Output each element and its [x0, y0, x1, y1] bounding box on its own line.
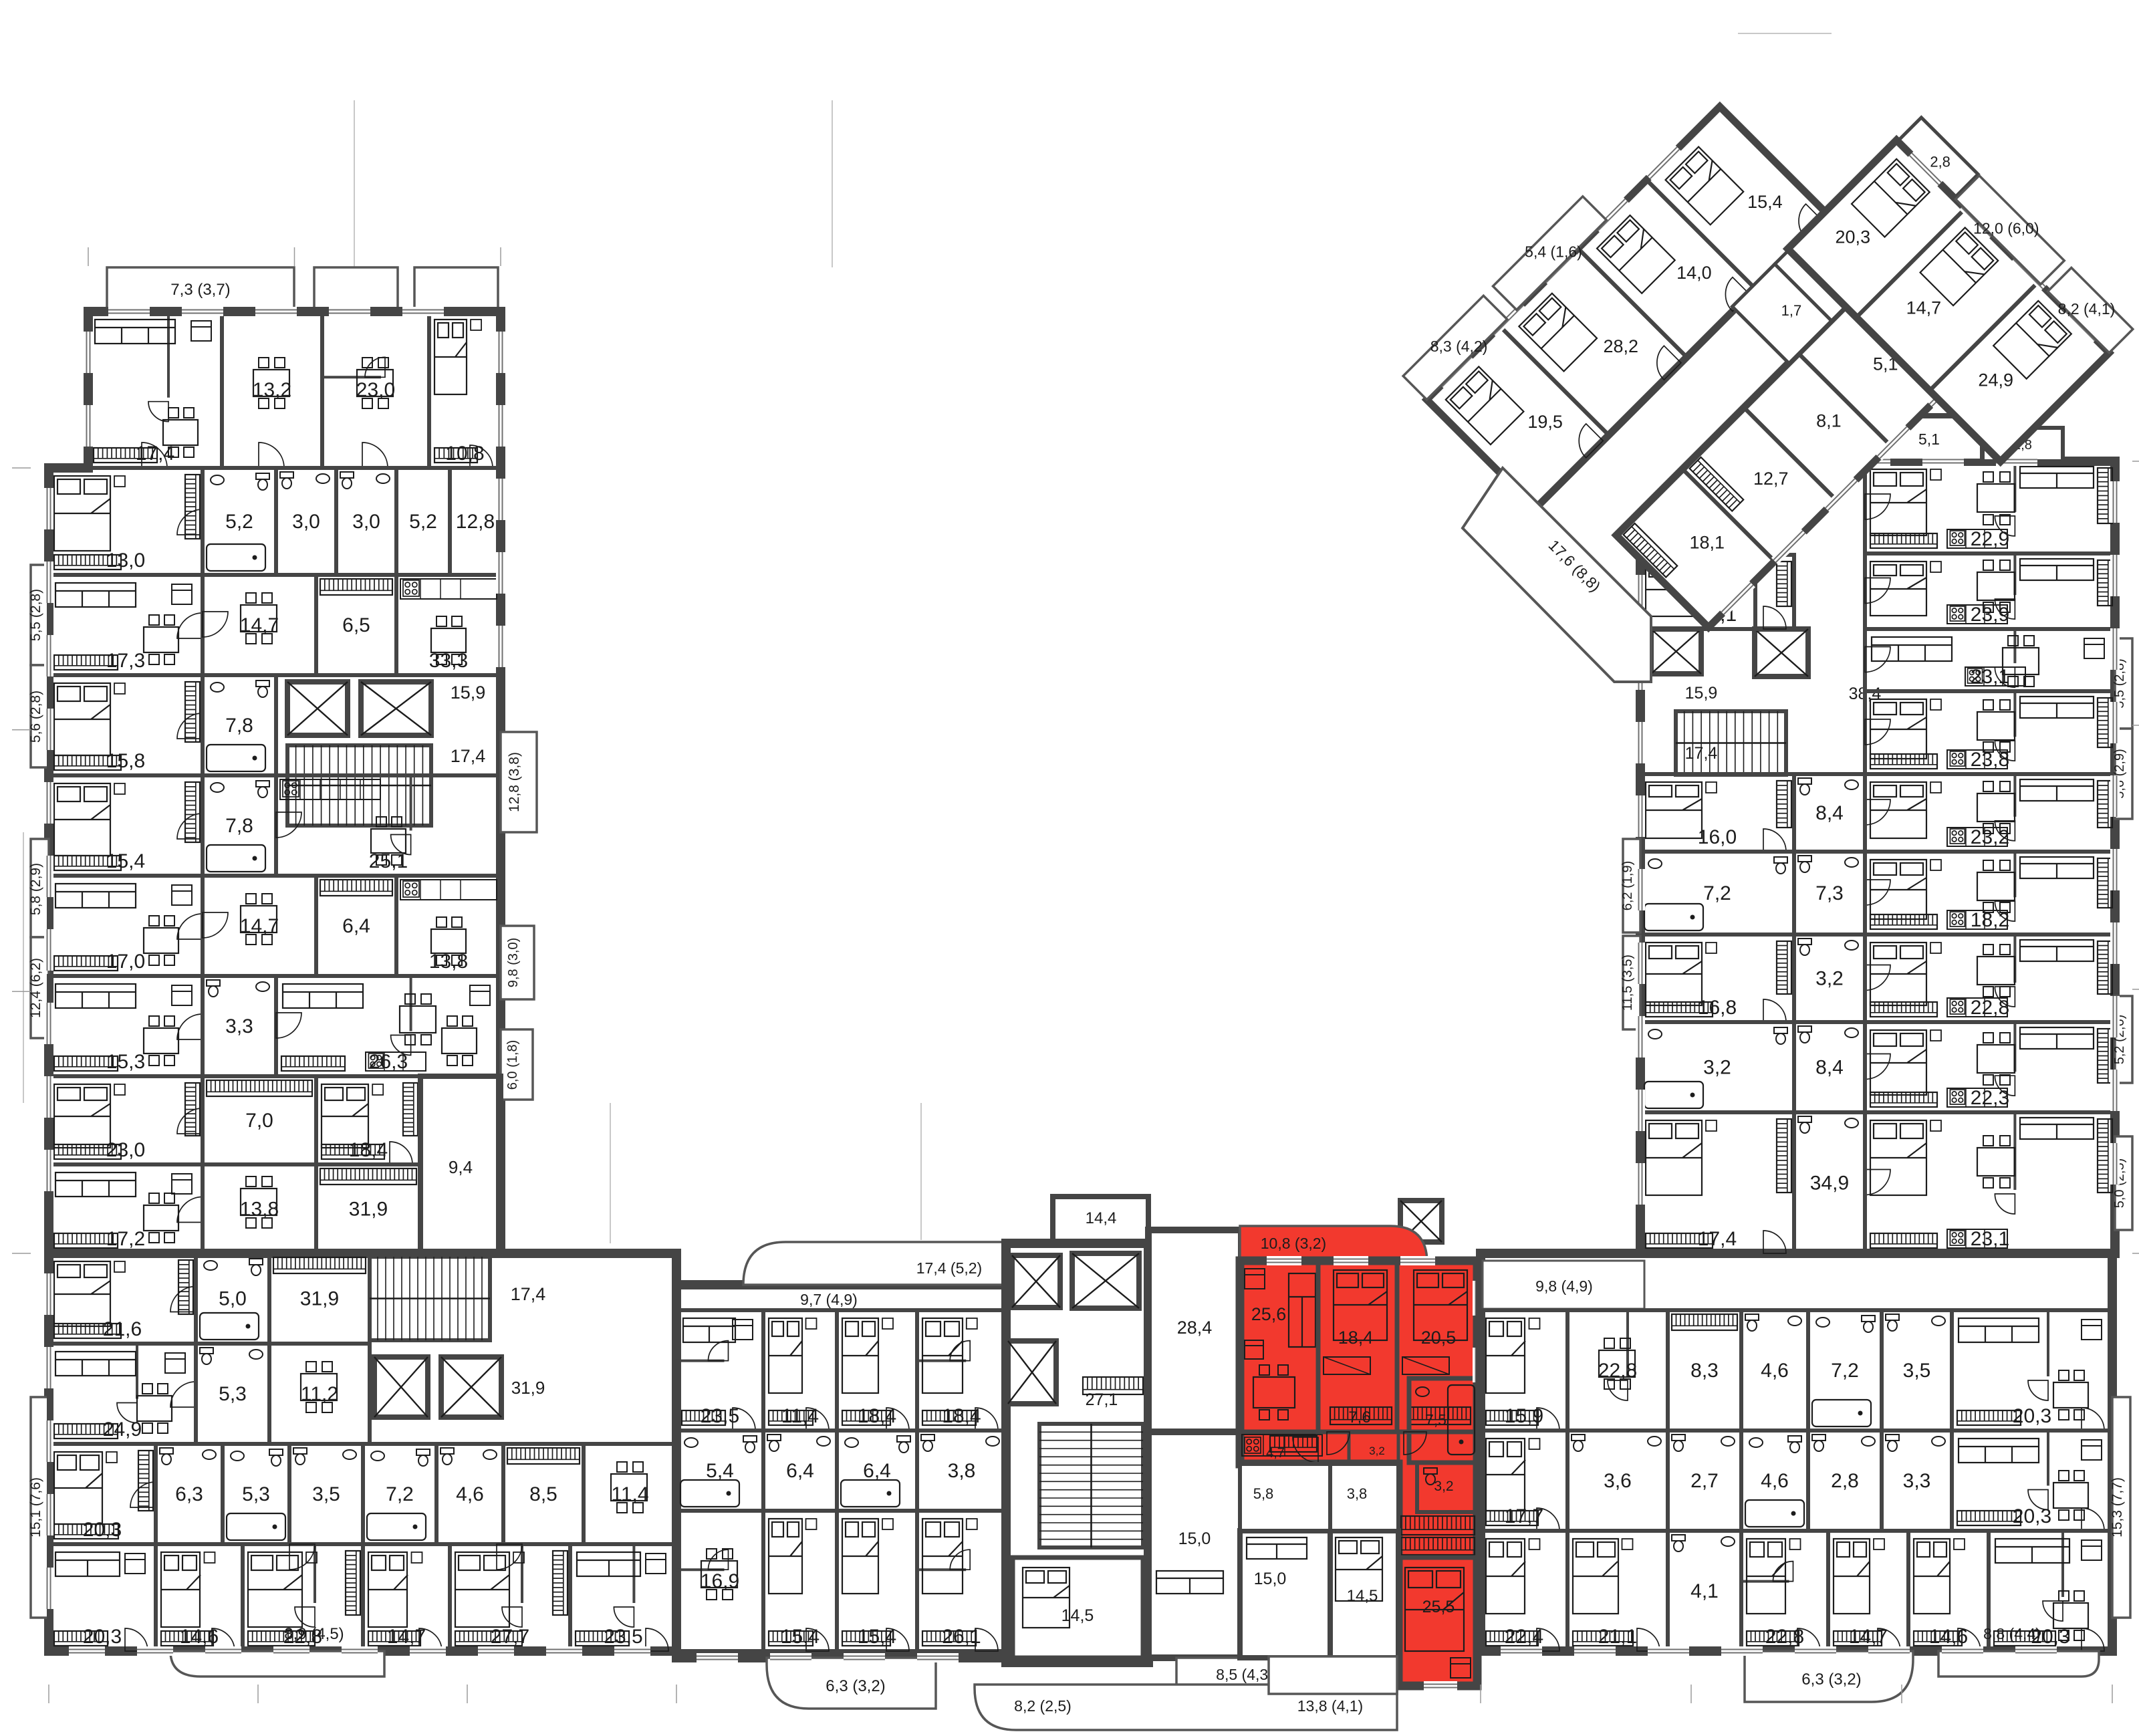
svg-text:6,0 (1,8): 6,0 (1,8): [505, 1040, 520, 1090]
svg-text:10,8: 10,8: [445, 443, 484, 465]
svg-text:28,4: 28,4: [1177, 1318, 1213, 1338]
svg-text:17,0: 17,0: [106, 951, 145, 973]
svg-text:9,7 (4,9): 9,7 (4,9): [800, 1291, 858, 1308]
svg-text:8,3: 8,3: [1690, 1360, 1719, 1382]
svg-text:12,7: 12,7: [1753, 469, 1789, 489]
svg-text:6,2 (1,9): 6,2 (1,9): [1620, 861, 1635, 910]
svg-text:3,2: 3,2: [1703, 1057, 1731, 1079]
svg-text:5,0: 5,0: [219, 1288, 247, 1310]
svg-text:5,2: 5,2: [225, 511, 253, 533]
svg-text:3,8: 3,8: [948, 1460, 976, 1482]
svg-text:23,0: 23,0: [356, 379, 395, 401]
svg-text:17,4: 17,4: [1685, 744, 1718, 763]
svg-text:33,3: 33,3: [429, 650, 468, 672]
svg-text:8,2 (4,1): 8,2 (4,1): [2058, 300, 2116, 318]
svg-text:5,3: 5,3: [242, 1483, 270, 1505]
svg-text:22,4: 22,4: [1505, 1626, 1543, 1648]
svg-text:8,1: 8,1: [1816, 410, 1842, 430]
svg-text:20,3: 20,3: [2013, 1505, 2051, 1527]
svg-text:5,4: 5,4: [706, 1460, 734, 1482]
svg-text:3,2: 3,2: [1434, 1479, 1453, 1494]
svg-text:17,4 (5,2): 17,4 (5,2): [916, 1259, 982, 1277]
svg-text:17,3: 17,3: [106, 650, 145, 672]
svg-text:13,2: 13,2: [253, 379, 291, 401]
svg-text:5,8: 5,8: [1253, 1485, 1274, 1502]
svg-text:22,8: 22,8: [1971, 997, 2009, 1019]
svg-text:23,2: 23,2: [1971, 826, 2009, 848]
svg-text:2,8: 2,8: [1831, 1470, 1859, 1492]
svg-text:16,0: 16,0: [1698, 826, 1737, 848]
svg-text:8,9 (4,5): 8,9 (4,5): [284, 1625, 344, 1643]
svg-text:6,3 (3,2): 6,3 (3,2): [1801, 1670, 1861, 1689]
svg-text:13,8 (4,1): 13,8 (4,1): [1297, 1697, 1363, 1715]
svg-text:4,6: 4,6: [456, 1483, 484, 1505]
svg-text:11,4: 11,4: [611, 1483, 648, 1505]
svg-text:23,1: 23,1: [1971, 1228, 2009, 1250]
svg-text:17,4: 17,4: [1698, 1228, 1737, 1250]
svg-text:4,1: 4,1: [1690, 1580, 1719, 1602]
svg-text:3,0: 3,0: [352, 511, 380, 533]
svg-text:15,4: 15,4: [781, 1626, 820, 1648]
svg-text:25,5: 25,5: [1422, 1598, 1455, 1616]
svg-text:6,4: 6,4: [342, 915, 370, 937]
svg-text:17,4: 17,4: [451, 746, 486, 766]
svg-text:8,4: 8,4: [1815, 1057, 1844, 1079]
svg-text:15,4: 15,4: [1747, 192, 1783, 212]
svg-text:17,4: 17,4: [511, 1284, 546, 1304]
svg-text:15,0: 15,0: [1178, 1529, 1211, 1548]
svg-text:20,3: 20,3: [83, 1519, 122, 1541]
svg-text:9,8 (3,0): 9,8 (3,0): [506, 938, 521, 987]
svg-text:4,7: 4,7: [1266, 1446, 1285, 1461]
svg-text:24,9: 24,9: [103, 1418, 142, 1441]
svg-text:21,1: 21,1: [1598, 1626, 1637, 1648]
svg-text:18,4: 18,4: [349, 1139, 388, 1161]
svg-text:23,9: 23,9: [1971, 604, 2009, 626]
svg-text:7,8: 7,8: [225, 715, 253, 737]
svg-text:7,0: 7,0: [245, 1110, 273, 1132]
svg-text:34,9: 34,9: [1810, 1172, 1849, 1195]
svg-text:5,2: 5,2: [409, 511, 437, 533]
svg-text:25,6: 25,6: [1251, 1304, 1287, 1324]
svg-text:13,8: 13,8: [429, 951, 468, 973]
svg-text:10,8 (3,2): 10,8 (3,2): [1261, 1235, 1326, 1252]
svg-text:7,2: 7,2: [386, 1483, 414, 1505]
svg-text:15,8: 15,8: [106, 750, 145, 772]
svg-text:5,8 (2,9): 5,8 (2,9): [28, 863, 43, 915]
svg-text:14,0: 14,0: [1676, 263, 1712, 283]
svg-text:4,6: 4,6: [1761, 1360, 1789, 1382]
svg-text:14,7: 14,7: [387, 1626, 426, 1648]
svg-text:28,2: 28,2: [1603, 336, 1638, 356]
svg-text:1,7: 1,7: [1781, 302, 1802, 319]
svg-text:5,1: 5,1: [1918, 430, 1940, 448]
svg-text:22,3: 22,3: [1971, 1087, 2009, 1109]
svg-text:3,3: 3,3: [225, 1015, 253, 1037]
svg-text:5,6 (2,8): 5,6 (2,8): [28, 691, 43, 743]
svg-text:15,4: 15,4: [106, 850, 145, 872]
svg-text:11,2: 11,2: [301, 1383, 338, 1405]
svg-text:6,5: 6,5: [342, 614, 370, 636]
svg-text:13,0: 13,0: [106, 549, 145, 572]
svg-text:7,5: 7,5: [1425, 1411, 1446, 1429]
svg-text:18,1: 18,1: [1690, 532, 1725, 552]
svg-text:5,3: 5,3: [219, 1383, 247, 1405]
svg-text:18,4: 18,4: [1338, 1328, 1374, 1348]
svg-text:15,9: 15,9: [451, 683, 486, 703]
svg-text:23,1: 23,1: [1971, 666, 2009, 688]
svg-text:7,3: 7,3: [1815, 882, 1844, 904]
svg-text:23,5: 23,5: [701, 1405, 739, 1427]
svg-text:15,1 (7,6): 15,1 (7,6): [28, 1477, 43, 1537]
svg-text:5,4 (1,6): 5,4 (1,6): [1525, 243, 1582, 260]
svg-text:6,4: 6,4: [863, 1460, 891, 1482]
svg-text:25,1: 25,1: [369, 850, 408, 872]
svg-text:8,2 (2,5): 8,2 (2,5): [1014, 1697, 1072, 1715]
svg-text:4,6: 4,6: [1761, 1470, 1789, 1492]
svg-text:14,7: 14,7: [240, 614, 279, 636]
svg-text:6,4: 6,4: [786, 1460, 814, 1482]
svg-text:3,5: 3,5: [312, 1483, 340, 1505]
svg-text:15,3 (7,7): 15,3 (7,7): [2110, 1477, 2125, 1537]
svg-text:24,9: 24,9: [1978, 370, 2013, 390]
svg-text:20,3: 20,3: [83, 1626, 122, 1648]
svg-text:19,5: 19,5: [1527, 412, 1563, 432]
svg-text:14,4: 14,4: [1086, 1209, 1117, 1227]
svg-text:7,2: 7,2: [1703, 882, 1731, 904]
svg-text:12,8: 12,8: [456, 511, 495, 533]
svg-text:7,2: 7,2: [1831, 1360, 1859, 1382]
svg-text:12,8 (3,8): 12,8 (3,8): [507, 752, 522, 812]
svg-text:3,2: 3,2: [1369, 1445, 1385, 1457]
svg-text:27,7: 27,7: [491, 1626, 529, 1648]
svg-text:3,8: 3,8: [1347, 1485, 1368, 1502]
svg-text:9,8 (4,9): 9,8 (4,9): [1535, 1277, 1593, 1295]
svg-text:14,6: 14,6: [180, 1626, 219, 1648]
svg-text:16,8: 16,8: [1698, 997, 1737, 1019]
svg-text:5,5 (2,8): 5,5 (2,8): [28, 589, 43, 641]
svg-text:15,9: 15,9: [1505, 1405, 1543, 1427]
svg-text:31,9: 31,9: [300, 1288, 339, 1310]
svg-text:17,2: 17,2: [106, 1228, 145, 1250]
svg-text:11,5 (3,5): 11,5 (3,5): [1620, 955, 1635, 1011]
svg-text:8,5 (4,3): 8,5 (4,3): [1216, 1666, 1273, 1683]
svg-text:3,0: 3,0: [292, 511, 320, 533]
svg-text:7,3 (3,7): 7,3 (3,7): [170, 281, 230, 299]
svg-text:3,6: 3,6: [1604, 1470, 1632, 1492]
svg-text:23,0: 23,0: [106, 1139, 145, 1161]
svg-text:21,6: 21,6: [103, 1318, 142, 1340]
svg-text:8,8 (4,4): 8,8 (4,4): [1983, 1625, 2041, 1642]
svg-text:8,5: 8,5: [529, 1483, 557, 1505]
svg-text:20,5: 20,5: [1421, 1328, 1457, 1348]
svg-text:23,8: 23,8: [1971, 749, 2009, 771]
svg-text:6,3 (3,2): 6,3 (3,2): [826, 1677, 885, 1695]
svg-text:20,3: 20,3: [1836, 227, 1871, 247]
svg-text:6,3: 6,3: [175, 1483, 203, 1505]
svg-text:22,8: 22,8: [1765, 1626, 1804, 1648]
svg-text:3,3: 3,3: [1903, 1470, 1931, 1492]
svg-text:17,7: 17,7: [1505, 1505, 1543, 1527]
svg-text:13,8: 13,8: [240, 1199, 279, 1221]
svg-text:9,4: 9,4: [449, 1157, 473, 1177]
svg-text:14,7: 14,7: [1906, 297, 1942, 318]
svg-text:15,0: 15,0: [1254, 1570, 1287, 1588]
svg-text:2,7: 2,7: [1690, 1470, 1719, 1492]
svg-text:3,2: 3,2: [1815, 968, 1844, 990]
svg-text:8,4: 8,4: [1815, 802, 1844, 824]
svg-text:23,5: 23,5: [604, 1626, 642, 1648]
svg-text:18,2: 18,2: [1971, 909, 2009, 931]
svg-text:16,9: 16,9: [701, 1570, 739, 1592]
svg-text:12,0 (6,0): 12,0 (6,0): [1973, 220, 2039, 237]
svg-text:15,3: 15,3: [106, 1051, 145, 1073]
svg-text:27,1: 27,1: [1086, 1390, 1118, 1409]
svg-text:22,9: 22,9: [1971, 528, 2009, 550]
svg-text:8,3 (4,2): 8,3 (4,2): [1430, 338, 1488, 355]
svg-text:14,5: 14,5: [1347, 1587, 1378, 1605]
svg-text:26,3: 26,3: [369, 1051, 408, 1073]
svg-text:14,5: 14,5: [1061, 1606, 1094, 1625]
svg-text:7,6: 7,6: [1348, 1408, 1370, 1427]
svg-text:14,7: 14,7: [240, 915, 279, 937]
svg-text:20,3: 20,3: [2013, 1405, 2051, 1427]
svg-text:12,4 (6,2): 12,4 (6,2): [28, 958, 43, 1018]
svg-text:7,8: 7,8: [225, 815, 253, 837]
svg-text:31,9: 31,9: [349, 1199, 388, 1221]
svg-text:15,9: 15,9: [1685, 684, 1718, 703]
svg-text:22,8: 22,8: [1598, 1360, 1637, 1382]
svg-text:2,8: 2,8: [1930, 153, 1951, 170]
svg-text:3,5: 3,5: [1903, 1360, 1931, 1382]
svg-text:31,9: 31,9: [511, 1378, 545, 1398]
